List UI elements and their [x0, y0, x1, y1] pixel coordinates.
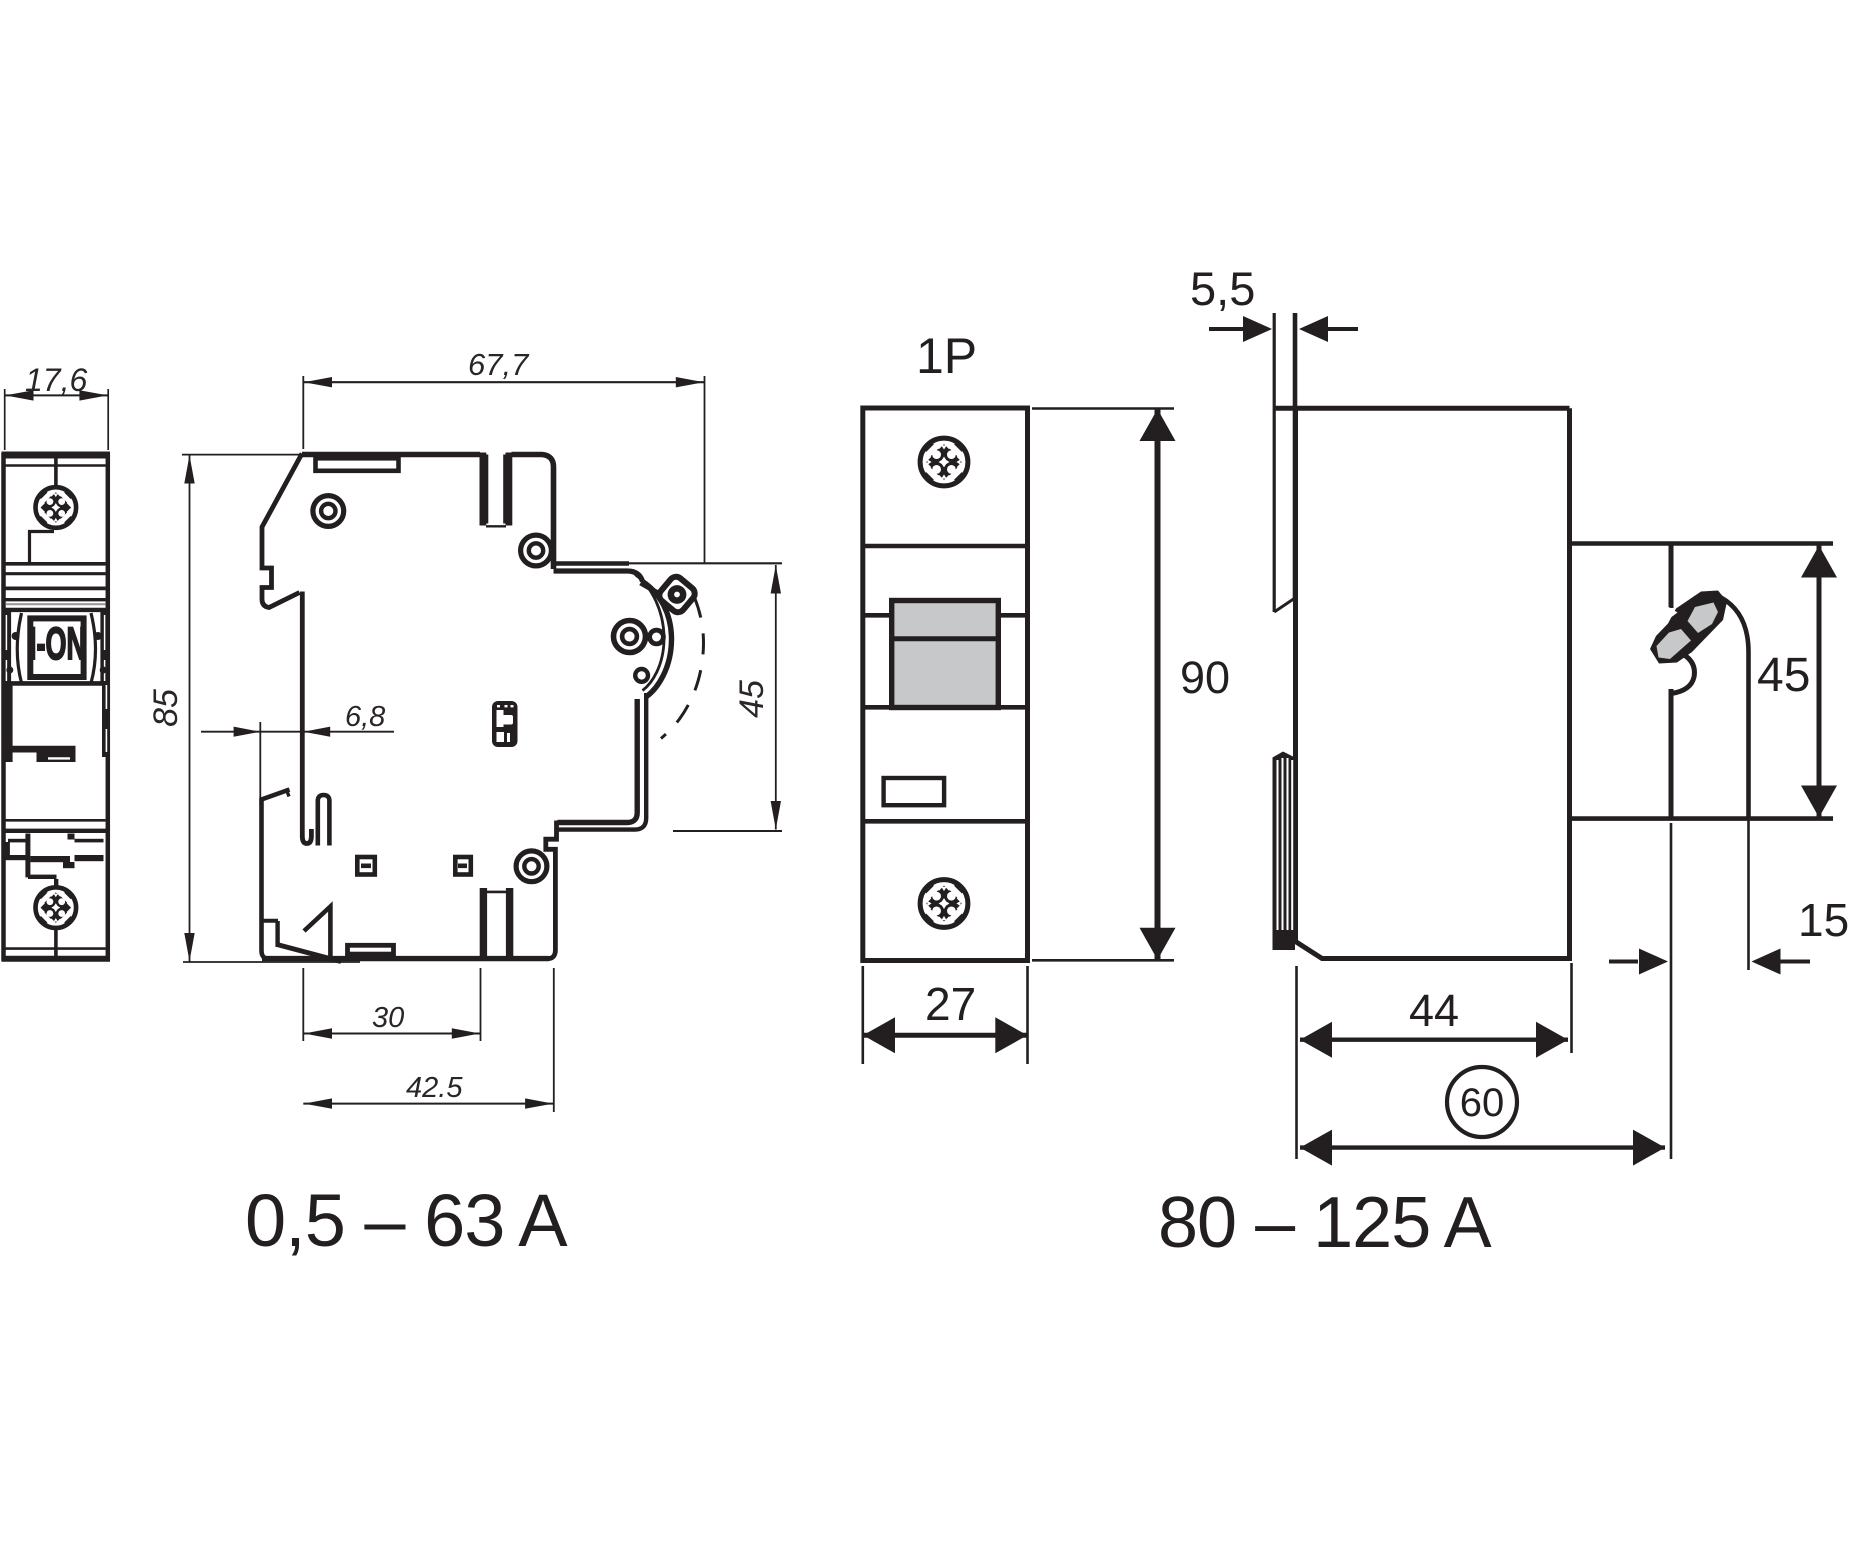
svg-text:90: 90	[1180, 652, 1230, 703]
svg-text:44: 44	[1409, 985, 1459, 1036]
svg-text:27: 27	[925, 978, 976, 1030]
svg-text:5,5: 5,5	[1190, 262, 1255, 315]
svg-text:15: 15	[1798, 894, 1849, 946]
svg-text:85: 85	[147, 689, 185, 727]
svg-text:30: 30	[372, 1002, 404, 1034]
svg-text:6,8: 6,8	[345, 701, 385, 733]
svg-text:42.5: 42.5	[406, 1072, 463, 1104]
svg-text:1P: 1P	[916, 328, 977, 384]
svg-text:80 – 125 A: 80 – 125 A	[1158, 1183, 1492, 1263]
svg-text:45: 45	[1757, 649, 1810, 702]
svg-text:0,5 – 63 A: 0,5 – 63 A	[245, 1179, 568, 1262]
svg-text:60: 60	[1460, 1081, 1505, 1125]
svg-text:67,7: 67,7	[468, 347, 530, 382]
svg-text:45: 45	[733, 680, 771, 718]
svg-text:17,6: 17,6	[25, 362, 87, 398]
svg-text:I-ON: I-ON	[29, 618, 86, 669]
